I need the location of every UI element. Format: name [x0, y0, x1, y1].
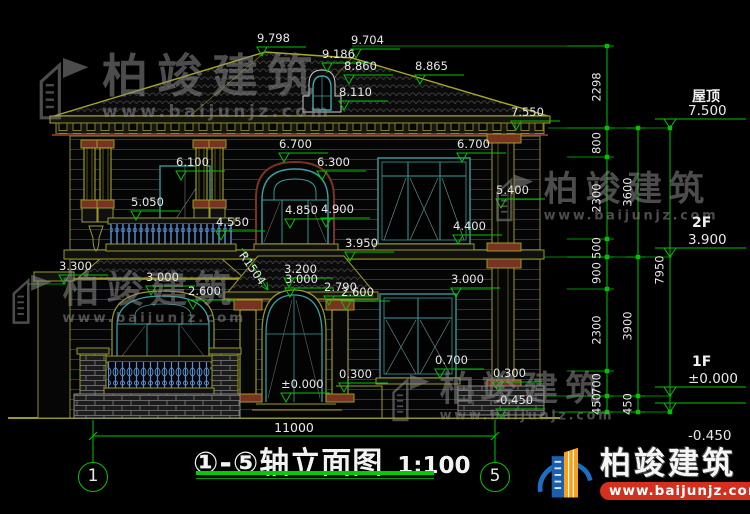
watermark-name: 柏竣建筑 — [544, 170, 719, 205]
cad-elevation-screenshot: 柏竣建筑 www.baijunjz.com 柏竣建筑 www.baijunjz.… — [0, 0, 750, 514]
title-text: 轴立面图 — [259, 446, 383, 481]
balcony-balustrade — [106, 218, 236, 251]
watermark: 柏竣建筑 www.baijunjz.com — [492, 170, 718, 223]
watermark-logo-icon — [492, 170, 536, 223]
watermark-url: www.baijunjz.com — [544, 208, 719, 223]
watermark-logo-icon — [34, 52, 92, 122]
large-window-2f — [374, 158, 474, 250]
company-logo: 柏竣建筑 www.baijunjz.com — [532, 442, 750, 506]
title-axis-range: ①-⑤ — [193, 446, 259, 481]
watermark-url: www.baijunjz.com — [102, 102, 332, 122]
watermark-logo-icon — [8, 270, 54, 326]
title-underline — [196, 471, 434, 475]
watermark-logo-icon — [388, 370, 432, 423]
company-logo-icon — [532, 442, 594, 506]
watermark-name: 柏竣建筑 — [102, 53, 332, 99]
watermark-url: www.baijunjz.com — [440, 408, 615, 423]
watermark: 柏竣建筑 www.baijunjz.com — [8, 270, 246, 326]
title-underline-thin — [196, 478, 434, 479]
arched-window-2f — [254, 162, 338, 250]
company-logo-name: 柏竣建筑 — [600, 448, 736, 481]
drawing-title: ①-⑤轴立面图1:100 — [193, 438, 470, 482]
title-scale: 1:100 — [397, 453, 470, 479]
watermark: 柏竣建筑 www.baijunjz.com — [388, 370, 614, 423]
brick-base-left — [74, 394, 240, 418]
watermark-name: 柏竣建筑 — [62, 270, 246, 307]
company-logo-url: www.baijunjz.com — [600, 482, 750, 500]
watermark: 柏竣建筑 www.baijunjz.com — [34, 52, 332, 122]
watermark-url: www.baijunjz.com — [62, 310, 246, 326]
watermark-name: 柏竣建筑 — [440, 370, 615, 405]
